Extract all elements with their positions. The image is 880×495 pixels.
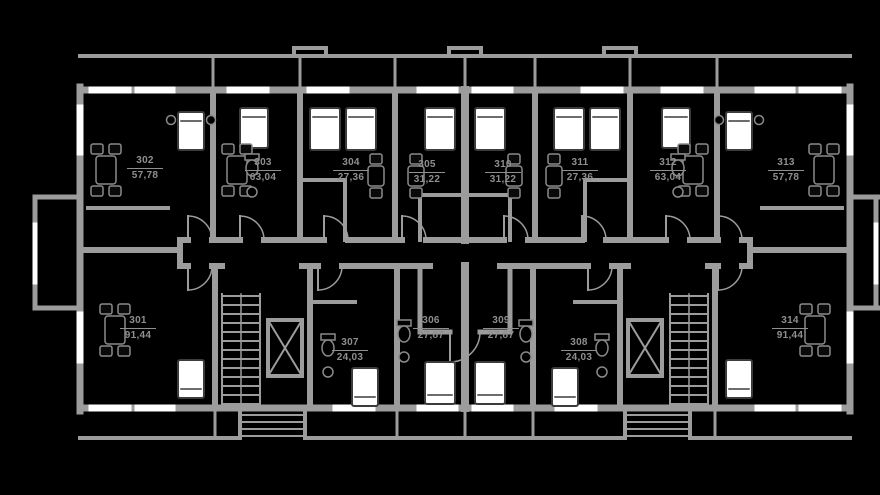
unit-number: 307 [332,337,368,351]
bed-icon [726,112,752,150]
unit-number: 304 [333,157,369,171]
unit-label-303[interactable]: 303 63,04 [240,157,286,184]
bed-icon [662,108,690,148]
unit-area: 24,03 [327,351,373,364]
unit-label-302[interactable]: 302 57,78 [122,155,168,182]
bed-icon [178,360,204,398]
sink-icon [247,187,257,197]
bed-icon [352,368,378,406]
unit-area: 31,22 [480,173,526,186]
chair [508,188,520,198]
bed-body [726,112,752,150]
chair [800,304,812,314]
chair [100,346,112,356]
bed-icon [240,108,268,148]
chair [827,144,839,154]
sink-icon [597,367,607,377]
sink-icon [673,187,683,197]
door-arc [402,216,426,240]
door-arc [504,216,528,240]
bed-body [310,108,340,150]
unit-area: 27,36 [557,171,603,184]
chair [100,304,112,314]
dining-set-icon [809,144,839,196]
chair [410,188,422,198]
unit-number: 301 [120,315,156,329]
chair [222,144,234,154]
unit-number: 302 [127,155,163,169]
door-arc [718,216,742,240]
unit-area: 63,04 [240,171,286,184]
chair [548,188,560,198]
door-arc [188,216,212,240]
unit-area: 24,03 [556,351,602,364]
dining-set-icon [91,144,121,196]
unit-label-307[interactable]: 307 24,03 [327,337,373,364]
elevator-icon [268,320,302,376]
unit-area: 91,44 [115,329,161,342]
chair [696,186,708,196]
nightstand-icon [167,116,176,125]
bed-body [662,108,690,148]
nightstand-icon [715,116,724,125]
chair [370,188,382,198]
unit-label-312[interactable]: 312 63,04 [645,157,691,184]
door-arc [318,266,342,290]
chair [91,144,103,154]
unit-area: 91,44 [767,329,813,342]
sink-icon [521,352,531,362]
unit-label-314[interactable]: 314 91,44 [767,315,813,342]
unit-area: 31,22 [404,173,450,186]
nightstand-icon [755,116,764,125]
bed-body [475,108,505,150]
sink-icon [399,352,409,362]
bed-body [178,360,204,398]
unit-area: 27,36 [328,171,374,184]
unit-label-308[interactable]: 308 24,03 [556,337,602,364]
unit-number: 306 [413,315,449,329]
floor-plan-drawing [0,0,880,495]
door-arc [188,266,212,290]
chair [696,144,708,154]
bed-body [346,108,376,150]
chair [118,304,130,314]
chair [109,144,121,154]
bed-body [554,108,584,150]
bed-icon [475,108,505,150]
chair [809,144,821,154]
bed-icon [178,112,204,150]
unit-label-304[interactable]: 304 27,36 [328,157,374,184]
unit-area: 57,78 [122,169,168,182]
chair [818,304,830,314]
unit-label-309[interactable]: 309 27,87 [478,315,524,342]
chair [827,186,839,196]
unit-label-305[interactable]: 305 31,22 [404,159,450,186]
chair [109,186,121,196]
bed-icon [425,362,455,404]
bed-body [475,362,505,404]
bed-icon [554,108,584,150]
bed-icon [346,108,376,150]
unit-label-311[interactable]: 311 27,36 [557,157,603,184]
unit-area: 63,04 [645,171,691,184]
bed-body [726,360,752,398]
bed-icon [590,108,620,150]
bed-body [178,112,204,150]
unit-number: 313 [768,157,804,171]
unit-number: 312 [650,157,686,171]
unit-number: 311 [562,157,598,171]
unit-label-310[interactable]: 310 31,22 [480,159,526,186]
door-arc [588,266,612,290]
chair [240,144,252,154]
unit-area: 27,87 [408,329,454,342]
unit-number: 308 [561,337,597,351]
table [814,156,834,184]
door-arc [718,266,742,290]
unit-area: 27,87 [478,329,524,342]
chair [678,144,690,154]
unit-number: 303 [245,157,281,171]
elevator-icon [628,320,662,376]
chair [222,186,234,196]
unit-number: 305 [409,159,445,173]
table [96,156,116,184]
sink-icon [323,367,333,377]
chair [800,346,812,356]
bed-body [425,362,455,404]
chair [809,186,821,196]
unit-label-306[interactable]: 306 27,87 [408,315,454,342]
unit-number: 309 [483,315,519,329]
bed-body [240,108,268,148]
bed-body [552,368,578,406]
bed-icon [475,362,505,404]
chair [91,186,103,196]
chair [118,346,130,356]
bed-body [590,108,620,150]
unit-label-313[interactable]: 313 57,78 [763,157,809,184]
bed-icon [425,108,455,150]
bed-icon [552,368,578,406]
bed-body [352,368,378,406]
unit-label-301[interactable]: 301 91,44 [115,315,161,342]
bed-icon [310,108,340,150]
bed-icon [726,360,752,398]
unit-number: 314 [772,315,808,329]
floor-plan-canvas: 302 57,78 303 63,04 304 27,36 305 31,22 … [0,0,880,495]
nightstand-icon [207,116,216,125]
unit-area: 57,78 [763,171,809,184]
door-arc [666,216,690,240]
bed-body [425,108,455,150]
unit-number: 310 [485,159,521,173]
chair [818,346,830,356]
door-arc [240,216,264,240]
